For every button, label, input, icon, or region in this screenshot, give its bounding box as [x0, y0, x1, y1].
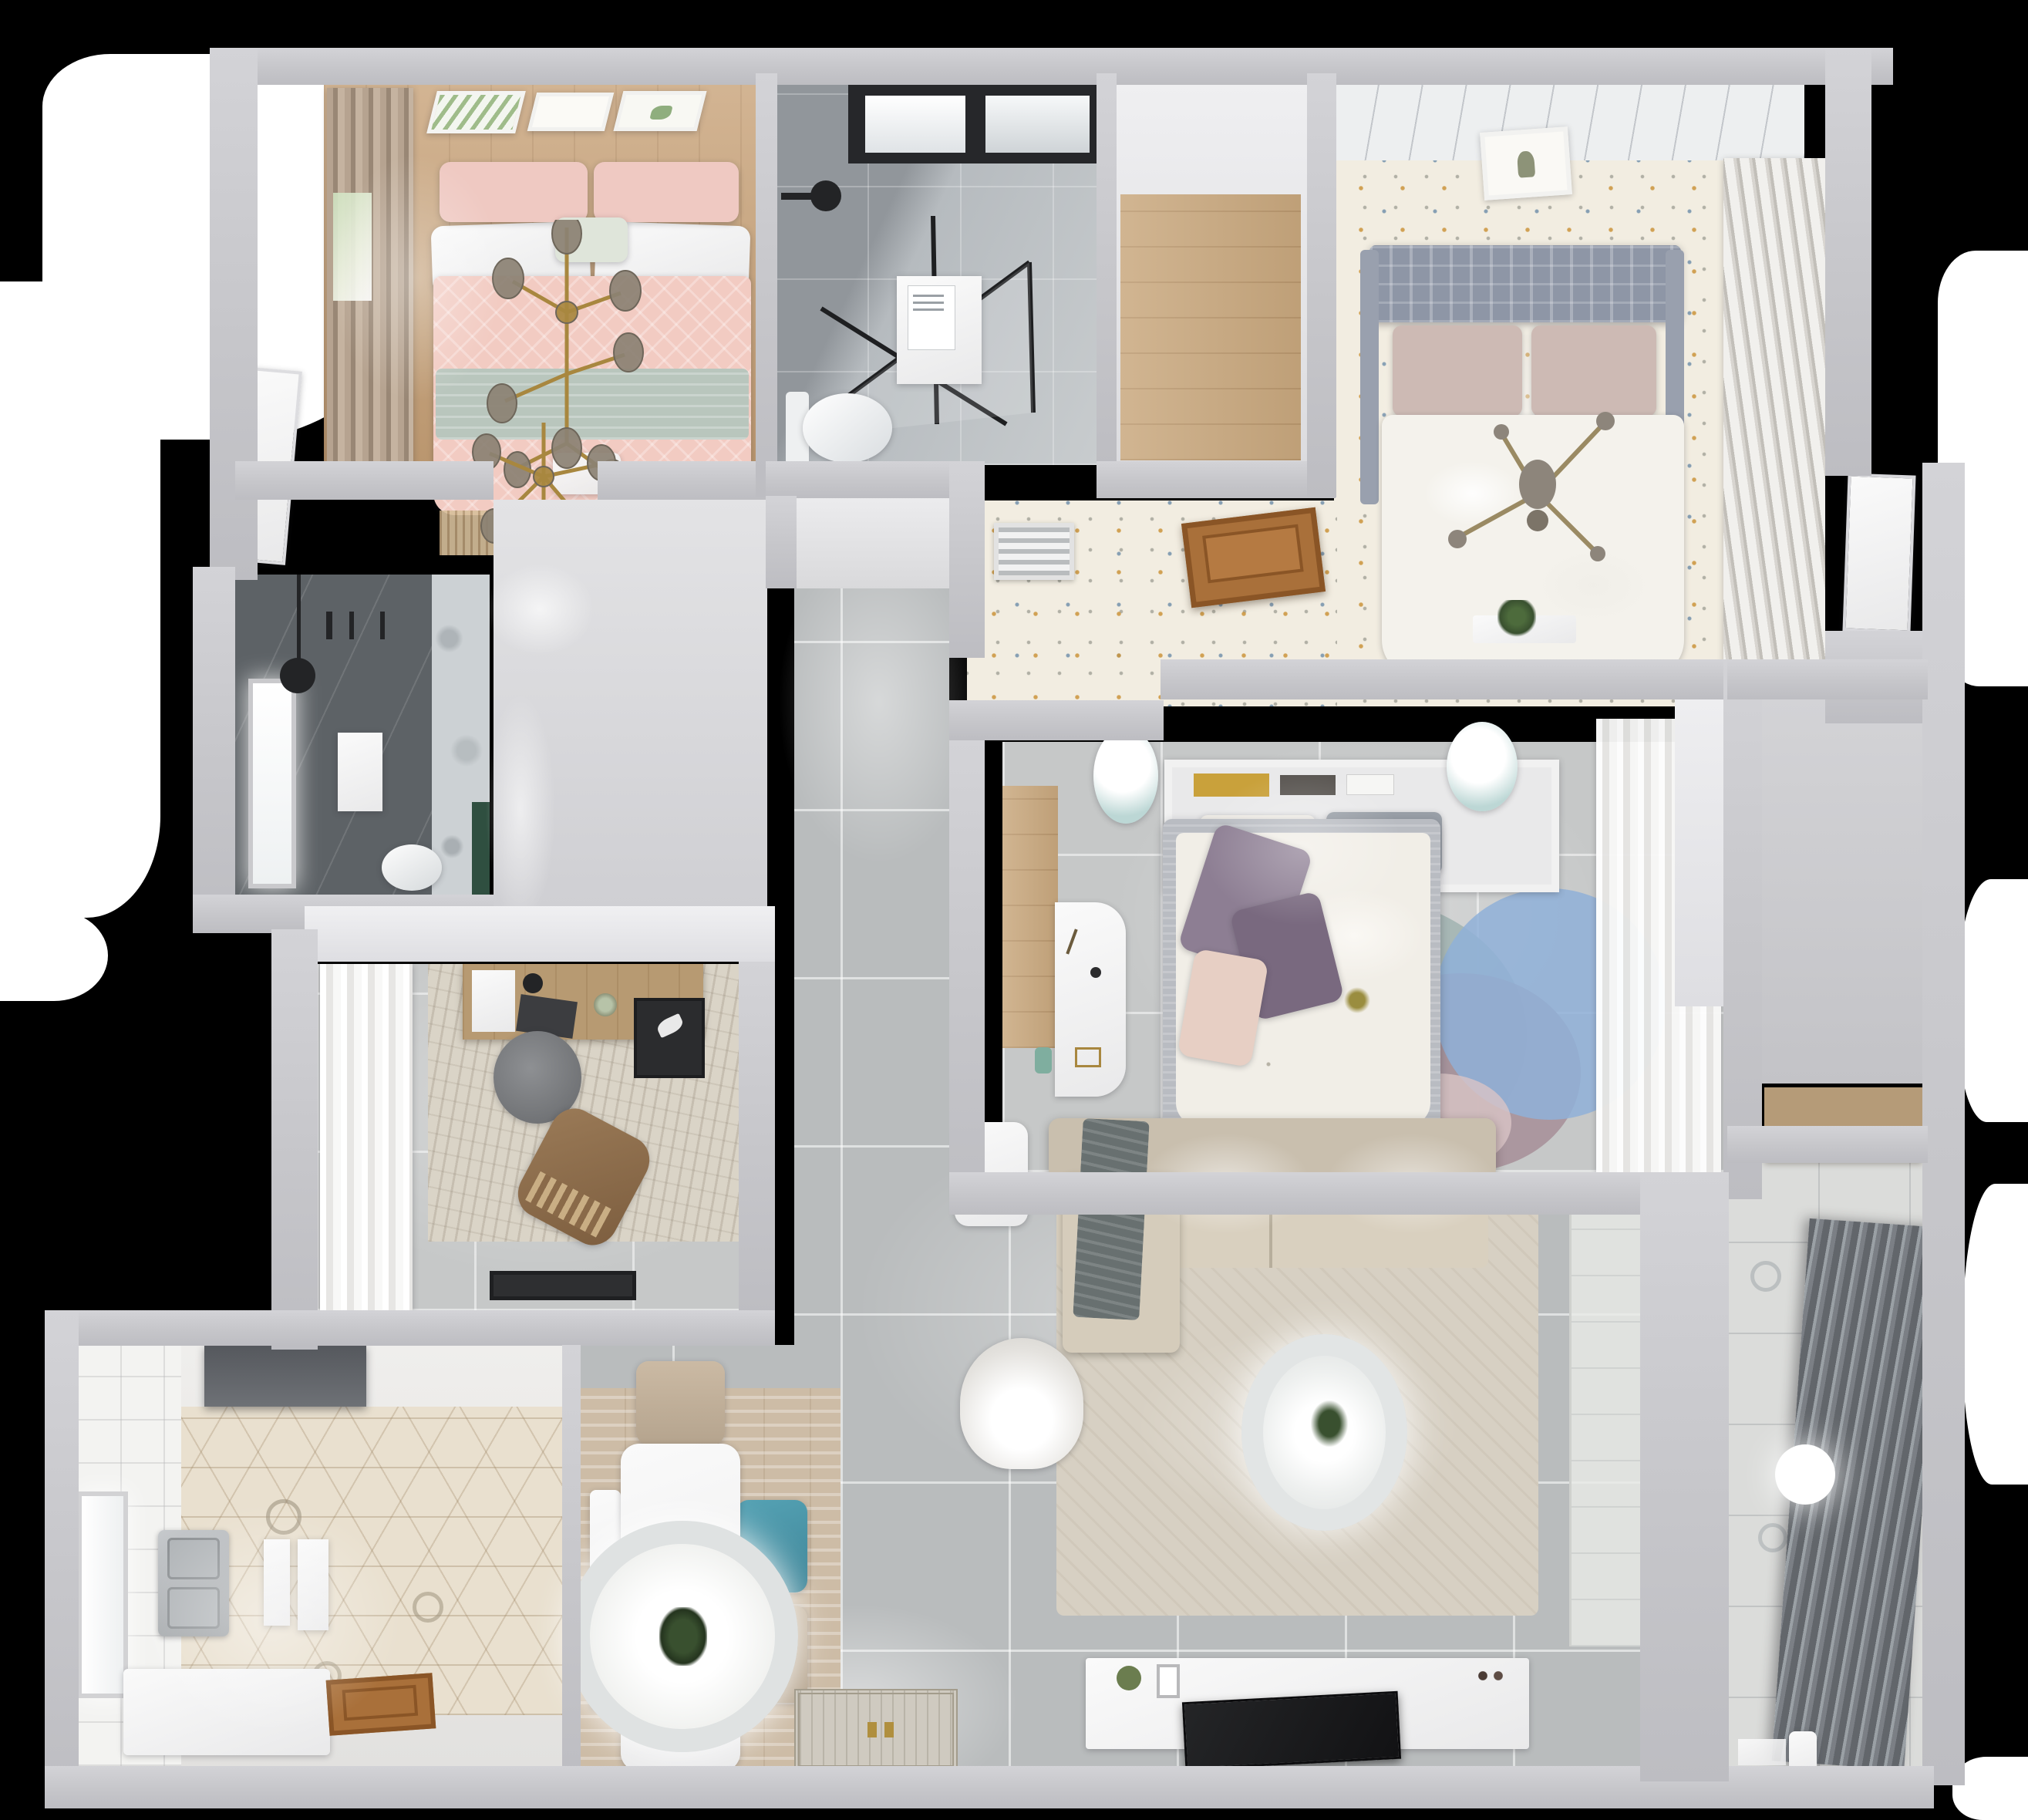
desk-pen-icon [1066, 929, 1077, 954]
wood-floor-hatch [1181, 507, 1326, 608]
wall-bathnorth-south [766, 461, 974, 498]
wall-closet-bedroom-east [1307, 73, 1336, 497]
bath-window-pane-right [985, 96, 1090, 153]
wall-east-outer [1922, 463, 1965, 1785]
balcony-tray [1738, 1739, 1786, 1765]
bedside-stool-left [1093, 728, 1158, 824]
east-pillow-right [1531, 325, 1656, 416]
balcony-motif-1 [1750, 1261, 1781, 1292]
room-walk-in-closet [1114, 85, 1307, 465]
wall-kitchen-dining [562, 1345, 581, 1789]
desk-plant [594, 993, 617, 1016]
west-bath-window [248, 679, 296, 888]
light-spill-right-3 [1962, 1184, 2028, 1485]
east-wall-art [1480, 126, 1572, 201]
closet-wood-floor [1120, 194, 1301, 460]
wall-study-north [305, 906, 775, 962]
wall-study-east [739, 962, 775, 1313]
east-cross-chandelier [1430, 393, 1646, 594]
wall-east-upper [1825, 48, 1871, 476]
east-bed-glow [1368, 285, 1661, 532]
shower-fittings [326, 612, 419, 639]
wall-wing-west [949, 461, 985, 658]
master-window-light [332, 154, 501, 401]
study-curtains [320, 964, 413, 1313]
room-bathroom-north [775, 85, 1099, 465]
wall-art-frame-1 [426, 91, 526, 133]
east-door [1842, 474, 1915, 634]
east-bed-rail-left [1360, 250, 1379, 504]
rack-leaf-icon [655, 1013, 685, 1038]
wall-master-bathnorth [756, 73, 777, 497]
east-bed-rail-right [1666, 250, 1684, 504]
wall-bathnorth-closet [1097, 73, 1117, 465]
wall-kitchen-north [45, 1310, 284, 1346]
kitchen-tall-unit [204, 1345, 366, 1407]
light-spill-bottom-left [0, 910, 108, 1001]
center-desk [1055, 902, 1126, 1097]
wall-bedroom-center-north-right [1161, 659, 1727, 699]
plant-ledge [1473, 615, 1576, 643]
wall-living-balcony [1640, 1172, 1729, 1781]
wall-east-hall-north [1727, 659, 1928, 699]
hex-motif-2 [413, 1592, 443, 1623]
wall-left-upper [210, 48, 258, 580]
wall-top [247, 48, 1893, 85]
light-spill-right-2 [1957, 879, 2028, 1122]
glass-partition [1569, 1215, 1640, 1646]
plank-ceiling-band [1334, 85, 1804, 160]
wall-bedroom-center-west [949, 740, 985, 1215]
wall-master-south-left [235, 461, 494, 500]
east-pillow-left [1393, 325, 1522, 416]
kitchen-light [139, 1504, 401, 1735]
desk-lamp [523, 973, 543, 993]
study-floor-mat [490, 1271, 636, 1300]
wall-bedroom-center-north-left [949, 700, 1164, 740]
hall-sconce-glow [486, 563, 594, 656]
wall-study-south [271, 1310, 775, 1346]
wall-corridor-west [766, 496, 797, 588]
bath-window [848, 85, 1107, 163]
ball-pendant-light [1775, 1444, 1835, 1505]
gold-sprig [1342, 985, 1373, 1016]
kitchen-window [77, 1491, 128, 1698]
wall-kitchen-west [45, 1310, 79, 1808]
ledge-plant [1497, 600, 1536, 637]
wall-art-frame-2 [527, 93, 614, 131]
wall-art-frame-3 [614, 91, 707, 131]
art-leaf-icon [649, 106, 672, 120]
wall-bathwest-outer [193, 567, 235, 929]
air-vent-grille [994, 523, 1074, 580]
floor-plan-render [0, 0, 2028, 1820]
bedside-stool-right [1447, 722, 1518, 811]
art-plant-icon [1517, 150, 1535, 177]
desk-gold-rack [1075, 1047, 1101, 1067]
room-balcony [1727, 1161, 1928, 1789]
wall-master-south-right [598, 461, 775, 500]
room-study [316, 964, 771, 1311]
bedroom-center-ceiling-light [1203, 771, 1403, 925]
hall-light-streak [486, 694, 555, 925]
hatch-inner-panel [1202, 524, 1304, 584]
room-bathroom-west [235, 575, 490, 895]
pendant-lamp-stem [297, 575, 301, 663]
bedroom-center-wood-strip [1002, 786, 1058, 1048]
east-duvet [1382, 415, 1684, 677]
toilet-bowl [803, 393, 892, 463]
pendant-lamp-shade [280, 658, 315, 693]
wall-bedroom-center-east [1723, 659, 1762, 1199]
east-headboard [1369, 245, 1681, 322]
storage-panel [908, 285, 955, 350]
bath-storage-unit [897, 276, 982, 384]
wall-balcony-north [1727, 1126, 1928, 1163]
light-spill-left [0, 281, 160, 918]
wall-closet-south [1097, 461, 1336, 498]
desk-teal-jar [1035, 1047, 1052, 1073]
bath-window-pane-left [865, 96, 965, 153]
west-toilet [382, 844, 442, 891]
master-pillow-pink-right [594, 162, 739, 222]
east-hall-floor [1762, 698, 1925, 1084]
wall-bedroom-center-south [949, 1172, 1728, 1215]
balcony-motif-3 [1758, 1523, 1787, 1552]
desk-knob-icon [1090, 967, 1101, 978]
towel-sheet [338, 733, 382, 811]
wall-study-west [271, 929, 318, 1350]
desk-papers [472, 970, 515, 1032]
study-wall-rack [634, 998, 705, 1078]
